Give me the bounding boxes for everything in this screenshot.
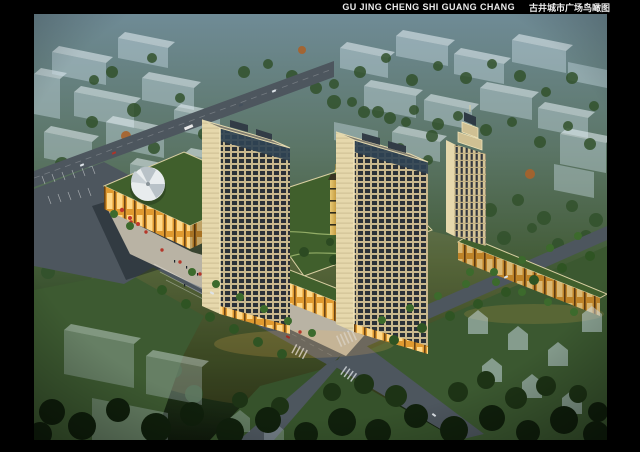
framed-rendering-board: GU JING CHENG SHI GUANG CHANG 古井城市广场鸟瞰图: [0, 0, 640, 452]
vignette-overlay: [34, 14, 607, 440]
title-english: GU JING CHENG SHI GUANG CHANG: [342, 2, 515, 12]
title-chinese: 古井城市广场鸟瞰图: [529, 1, 610, 14]
aerial-rendering: [34, 14, 607, 440]
title-bar: GU JING CHENG SHI GUANG CHANG 古井城市广场鸟瞰图: [0, 0, 640, 14]
aerial-rendering-frame: [34, 14, 607, 440]
